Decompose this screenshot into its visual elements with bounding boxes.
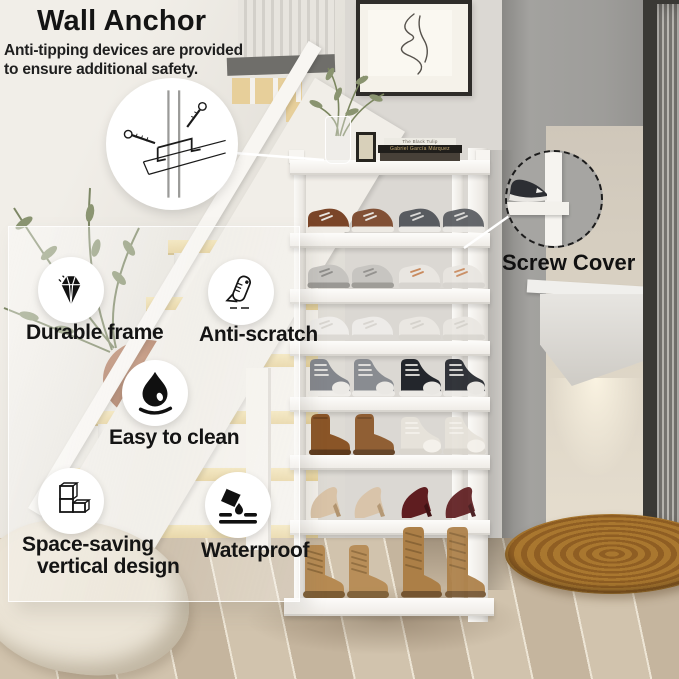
- product-scene: The Black TulipGabriel García Márquez Du…: [0, 0, 679, 679]
- feature-label: Space-saving: [22, 533, 154, 557]
- diamond-icon: [52, 271, 90, 309]
- gray-hightops: [306, 356, 396, 403]
- mini-photo: [359, 135, 373, 159]
- stacked-shelf-icon: [51, 481, 91, 521]
- screw-cover-label: Screw Cover: [502, 250, 635, 276]
- page-title: Wall Anchor: [37, 5, 206, 38]
- scraper-icon: [222, 273, 260, 311]
- feature-label: Durable frame: [26, 321, 163, 345]
- feature-label: Easy to clean: [109, 426, 239, 450]
- black-hightops: [397, 356, 487, 403]
- tan-tall-boots: [397, 523, 487, 604]
- maroon-heels: [397, 481, 487, 526]
- wall-anchor-callout: [106, 78, 238, 210]
- feature-durable-frame: [38, 257, 104, 323]
- white-sneakers: [306, 312, 396, 347]
- tan-combat-boots: [300, 541, 390, 604]
- feature-label: Anti-scratch: [199, 323, 318, 347]
- feature-easy-to-clean: [122, 360, 188, 426]
- brown-ankle-boots: [306, 410, 396, 461]
- feature-anti-scratch: [208, 259, 274, 325]
- beige-heels: [306, 481, 396, 526]
- sneaker-zoom-icon: [507, 174, 551, 206]
- subtitle-line: Anti-tipping devices are provided: [4, 42, 243, 60]
- white-hightops: [397, 414, 487, 461]
- white-tan-sneakers: [397, 260, 487, 295]
- wall-anchor-diagram-icon: [113, 85, 231, 203]
- book-stack: The Black TulipGabriel García Márquez: [376, 137, 468, 163]
- feature-space-saving: [38, 468, 104, 534]
- book-spine: [380, 153, 460, 161]
- white-sneakers: [397, 312, 487, 347]
- screw-cover-callout: [505, 150, 603, 248]
- feature-label: vertical design: [37, 555, 180, 579]
- glass-vase: [325, 116, 351, 164]
- feature-waterproof: [205, 472, 271, 538]
- gray-sneakers: [397, 204, 487, 239]
- pouring-water-icon: [217, 485, 259, 525]
- feature-label: Waterproof: [201, 539, 309, 563]
- mini-photo-frame: [356, 132, 376, 162]
- water-drop-icon: [134, 369, 176, 417]
- book-spine: Gabriel García Márquez: [378, 145, 462, 153]
- gray-white-sneakers: [306, 260, 396, 295]
- bench-underglow: [548, 378, 644, 478]
- subtitle-line: to ensure additional safety.: [4, 61, 198, 79]
- brown-sneakers: [306, 204, 396, 239]
- book-spine: The Black Tulip: [384, 138, 456, 145]
- ribbed-glass-panel: [657, 4, 679, 542]
